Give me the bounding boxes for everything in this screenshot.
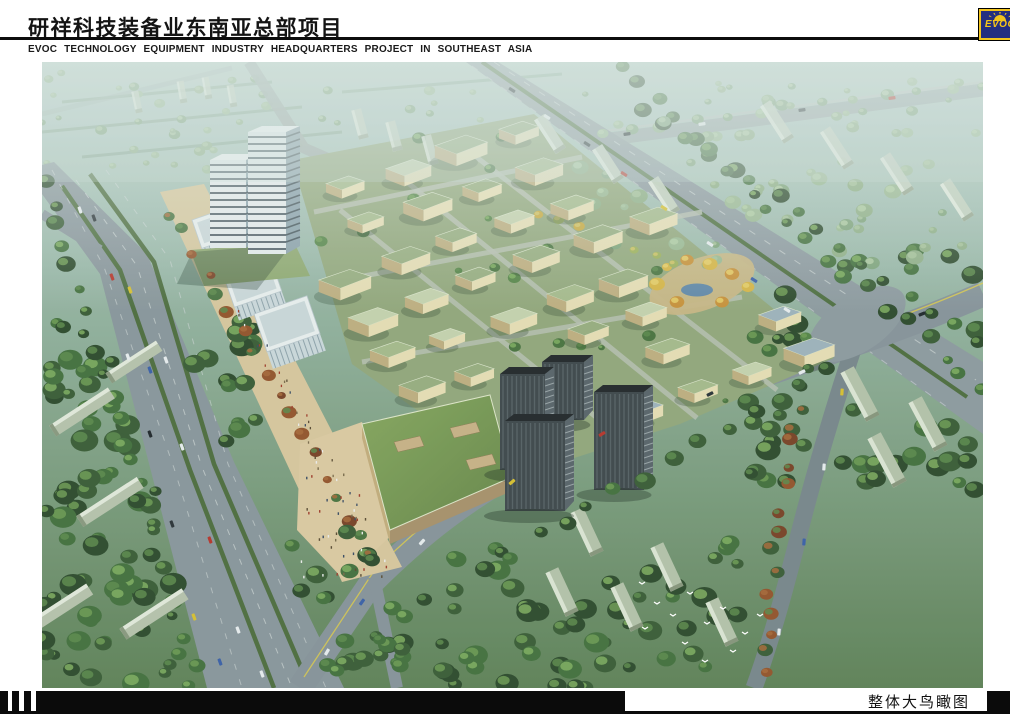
footer-end-block xyxy=(987,691,1010,712)
project-title-en: EVOC TECHNOLOGY EQUIPMENT INDUSTRY HEADQ… xyxy=(28,44,532,55)
logo-wordmark: EVOC xyxy=(979,20,1010,30)
footer: 整体大鸟瞰图 xyxy=(0,691,1010,714)
presentation-board: 研祥科技装备业东南亚总部项目 EVOC TECHNOLOGY EQUIPMENT… xyxy=(0,0,1010,714)
evoc-logo: EVOC xyxy=(978,8,1010,41)
header-rule xyxy=(0,37,1010,40)
aerial-rendering xyxy=(42,62,983,688)
aerial-rendering-canvas xyxy=(42,62,983,688)
drawing-caption: 整体大鸟瞰图 xyxy=(852,692,986,712)
